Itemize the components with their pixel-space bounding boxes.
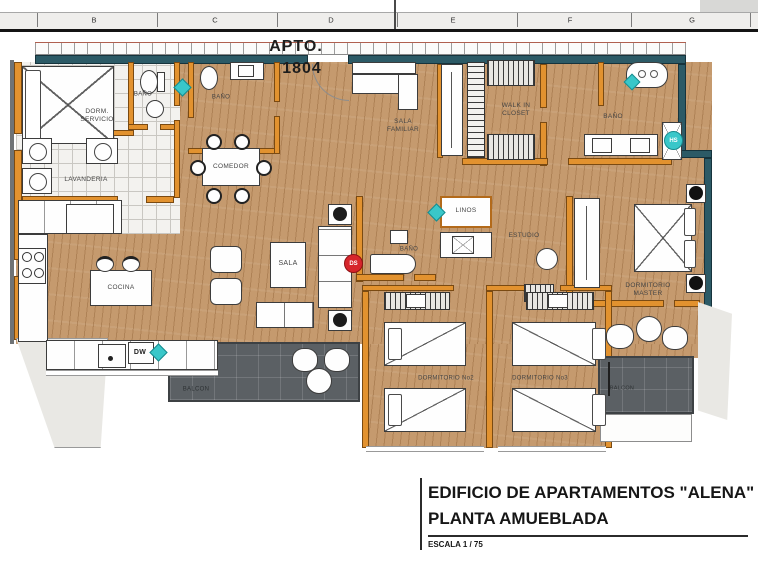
ruler-tick (750, 13, 751, 27)
burner (22, 252, 32, 262)
wall (356, 274, 404, 281)
room-label-dormitorio-master: DORMITORIO MASTER (625, 282, 670, 298)
room-label-bano-servicio: BAÑO (134, 91, 152, 98)
floor-plan-sheet: B C D E F G (0, 0, 758, 564)
ruler-tick (631, 13, 632, 27)
wall (598, 62, 604, 106)
room-label-cocina: COCINA (107, 284, 134, 292)
room-label-sala-familiar: SALA FAMILIAR (387, 118, 419, 134)
dining-chair (206, 134, 222, 150)
wall (540, 64, 547, 108)
room-label-bano-social: BAÑO (212, 94, 230, 101)
wall (592, 300, 664, 307)
hs-marker: HS (664, 131, 683, 150)
burner (22, 268, 32, 278)
speaker (333, 207, 347, 221)
bed-pillow (592, 328, 606, 360)
tv-console-line (451, 72, 452, 148)
sheet-divider-line (394, 0, 396, 29)
room-label-bano-master: BAÑO (603, 113, 623, 121)
bed-pillow (684, 208, 696, 236)
dining-chair (190, 160, 206, 176)
armchair (210, 246, 242, 273)
room-label-sala: SALA (278, 260, 297, 268)
label-dishwasher: DW (134, 349, 146, 357)
laundry-basin (94, 143, 112, 161)
bathroom-sink (146, 100, 164, 118)
room-label-dormitorio-no2: DORMITORIO No2 (418, 375, 474, 382)
bar-stool (96, 256, 114, 272)
ruler-letter: B (91, 16, 96, 25)
title-block-rule (428, 535, 748, 537)
wall (274, 62, 280, 102)
faucet (108, 356, 113, 361)
bed-pillow (388, 394, 402, 426)
ruler-letter: G (689, 16, 695, 25)
exterior-wall (678, 150, 712, 158)
lamp (689, 276, 703, 290)
tub-fixture (650, 70, 658, 78)
closet-drawer (548, 294, 568, 308)
sink (592, 138, 612, 153)
title-block-divider (420, 478, 422, 550)
dining-chair (234, 134, 250, 150)
wall (486, 291, 493, 448)
terrace-chair (662, 326, 688, 350)
burner (34, 252, 44, 262)
wall (274, 116, 280, 154)
ruler-tick (517, 13, 518, 27)
room-label-balcon-right: BALCON (610, 386, 634, 393)
toilet (200, 66, 218, 90)
bathtub (370, 254, 416, 274)
tv-console (441, 64, 463, 156)
wall (362, 291, 369, 448)
terrace-chair (606, 324, 634, 349)
sink (238, 65, 254, 77)
room-label-comedor: COMEDOR (213, 163, 249, 171)
twin-bed (512, 322, 596, 366)
room-label-estudio: ESTUDIO (509, 232, 540, 240)
room-label-walk-in-closet: WALK IN CLOSET (502, 102, 531, 118)
ruler-letter: E (450, 16, 455, 25)
ruler-tick (157, 13, 158, 27)
armchair (210, 278, 242, 305)
title-plan-type: PLANTA AMUEBLADA (428, 509, 609, 529)
ruler-tick (37, 13, 38, 27)
sink (390, 230, 408, 244)
wall (568, 158, 672, 165)
ruler-letter: F (568, 16, 573, 25)
study-cabinet (574, 198, 600, 288)
wall (674, 300, 700, 307)
window-mullion-strip (35, 42, 686, 55)
loveseat (256, 302, 314, 328)
room-label-dormitorio-no3: DORMITORIO No3 (512, 375, 568, 382)
washer-door (29, 143, 47, 161)
room-label-bano-central: BAÑO (400, 246, 418, 253)
sectional-sofa-back (352, 62, 416, 74)
window-sill (46, 370, 218, 376)
dining-chair (256, 160, 272, 176)
terrace-table (636, 316, 662, 342)
wall (414, 274, 436, 281)
bed-pillow (592, 394, 606, 426)
room-label-dorm-servicio: DORM. SERVICIO (80, 108, 113, 124)
cabinet-line (586, 206, 587, 280)
wall (362, 285, 454, 291)
window-sill (366, 446, 484, 452)
toilet (140, 70, 158, 94)
balcony-table (306, 368, 332, 394)
lamp (689, 186, 703, 200)
study-chair (536, 248, 558, 270)
title-building-name: EDIFICIO DE APARTAMENTOS "ALENA" (428, 483, 754, 503)
ruler-tick (277, 13, 278, 27)
ruler-letter: C (212, 16, 217, 25)
twin-bed (512, 388, 596, 432)
ruler-corner (700, 0, 758, 12)
sectional-sofa-seat (352, 74, 400, 94)
bed-pillow (388, 328, 402, 360)
sectional-chaise (398, 74, 418, 110)
closet-hanging-rack (487, 60, 535, 86)
wall (146, 196, 174, 203)
wall (14, 62, 22, 134)
apartment-label: APTO. (269, 38, 323, 56)
building-edge-strip (698, 302, 732, 420)
room-label-linos: LINOS (455, 207, 476, 215)
exterior-wall (35, 55, 308, 64)
balcony-chair (324, 348, 350, 372)
bar-stool (122, 256, 140, 272)
column-ruler (0, 12, 758, 30)
room-label-lavanderia: LAVANDERIA (64, 176, 107, 184)
dining-chair (206, 188, 222, 204)
cabinet-appliance (452, 236, 474, 254)
burner (34, 268, 44, 278)
closet-drawer (406, 294, 426, 308)
tub-fixture (638, 70, 646, 78)
title-scale: ESCALA 1 / 75 (428, 540, 483, 549)
planter-box (600, 414, 692, 442)
bed-pillow (25, 70, 41, 140)
ds-marker: DS (344, 254, 363, 273)
apartment-number: 1804 (282, 60, 322, 78)
ruler-tick (397, 13, 398, 27)
speaker (333, 313, 347, 327)
room-label-balcon-left: BALCON (183, 386, 209, 393)
dining-chair (234, 188, 250, 204)
closet-hanging-rack (487, 134, 535, 160)
refrigerator (66, 204, 114, 234)
wall (174, 120, 180, 198)
closet-shelves (467, 62, 485, 158)
dryer-door (29, 173, 47, 191)
wall (128, 124, 148, 130)
sink (630, 138, 650, 153)
toilet-tank (157, 72, 165, 92)
window-sill (498, 446, 606, 452)
sheet-top-border (0, 29, 758, 32)
bed-pillow (684, 240, 696, 268)
ruler-letter: D (328, 16, 333, 25)
